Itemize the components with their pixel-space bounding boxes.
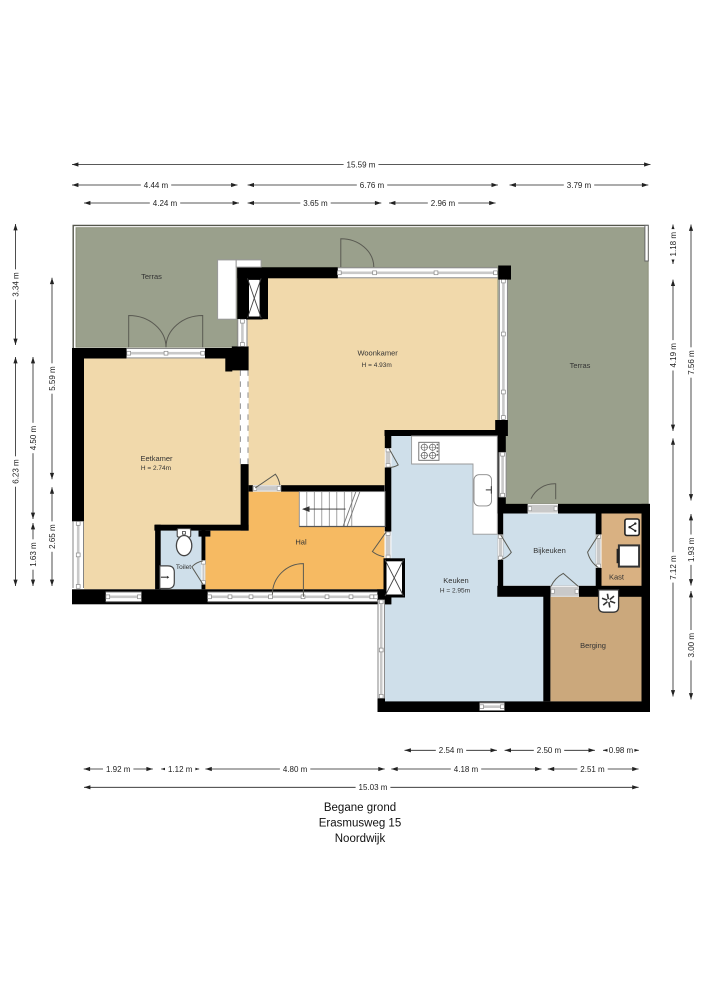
svg-text:2.65 m: 2.65 m [48, 524, 57, 549]
svg-text:2.54 m: 2.54 m [439, 746, 464, 755]
svg-text:Keuken: Keuken [443, 576, 468, 585]
svg-text:Kast: Kast [609, 572, 625, 581]
svg-text:3.65 m: 3.65 m [303, 199, 328, 208]
svg-text:2.50 m: 2.50 m [537, 746, 562, 755]
svg-text:Terras: Terras [141, 272, 162, 281]
svg-text:1.63 m: 1.63 m [29, 542, 38, 567]
svg-text:3.00 m: 3.00 m [687, 633, 696, 658]
svg-text:7.12 m: 7.12 m [669, 555, 678, 580]
svg-text:6.76 m: 6.76 m [360, 181, 385, 190]
svg-text:Toilet: Toilet [176, 564, 191, 571]
svg-text:Bijkeuken: Bijkeuken [533, 546, 566, 555]
svg-text:0.98 m: 0.98 m [609, 746, 634, 755]
svg-text:H = 2.74m: H = 2.74m [141, 465, 171, 472]
svg-text:6.23 m: 6.23 m [11, 459, 20, 484]
svg-text:3.79 m: 3.79 m [567, 181, 592, 190]
svg-text:4.18 m: 4.18 m [454, 765, 479, 774]
svg-text:1.93 m: 1.93 m [687, 537, 696, 562]
svg-text:Begane grond: Begane grond [324, 802, 396, 814]
svg-text:Erasmusweg 15: Erasmusweg 15 [319, 817, 401, 829]
svg-text:Eetkamer: Eetkamer [140, 454, 173, 463]
svg-text:1.18 m: 1.18 m [669, 232, 678, 257]
svg-text:7.56 m: 7.56 m [687, 350, 696, 375]
svg-text:4.19 m: 4.19 m [669, 343, 678, 368]
svg-text:4.80 m: 4.80 m [283, 765, 308, 774]
svg-text:Noordwijk: Noordwijk [335, 833, 386, 845]
svg-text:Woonkamer: Woonkamer [357, 348, 398, 357]
svg-text:H = 2.95m: H = 2.95m [440, 587, 470, 594]
svg-text:Terras: Terras [570, 361, 591, 370]
svg-text:3.34 m: 3.34 m [11, 272, 20, 297]
svg-text:Hal: Hal [295, 538, 307, 547]
svg-text:Berging: Berging [580, 641, 606, 650]
svg-text:15.59 m: 15.59 m [347, 160, 376, 169]
svg-text:H = 4.93m: H = 4.93m [362, 362, 392, 369]
svg-text:4.50 m: 4.50 m [29, 425, 38, 450]
svg-text:4.44 m: 4.44 m [144, 181, 169, 190]
svg-text:1.12 m: 1.12 m [168, 765, 193, 774]
svg-text:2.96 m: 2.96 m [431, 199, 456, 208]
svg-text:15.03 m: 15.03 m [359, 783, 388, 792]
svg-text:4.24 m: 4.24 m [153, 199, 178, 208]
svg-text:1.92 m: 1.92 m [106, 765, 131, 774]
svg-text:2.51 m: 2.51 m [580, 765, 605, 774]
svg-text:5.59 m: 5.59 m [48, 366, 57, 391]
